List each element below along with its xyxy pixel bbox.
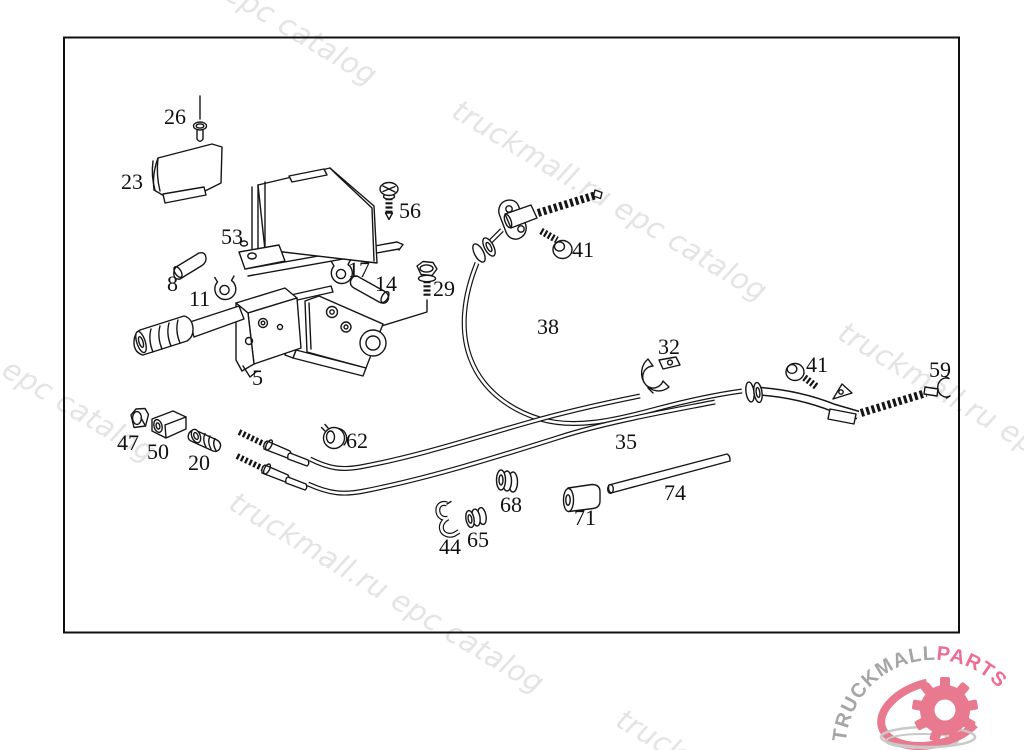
part-32-clamp [642,357,680,393]
part-20-sleeve [188,428,220,451]
watermark-text: truckmall.ru epc catalog [56,0,383,92]
callout-29: 29 [433,276,455,301]
watermark-text: truckmall.ru epc catalog [223,485,550,700]
part-5-hand-brake-lever [134,286,386,377]
callout-59: 59 [929,357,951,382]
callout-74: 74 [664,480,686,505]
callout-62: 62 [346,428,368,453]
brand-logo: TRUCKMALLPARTS [829,643,1011,750]
part-44-clip [438,502,459,536]
callout-26: 26 [164,104,186,129]
callout-41-rear: 41 [806,352,828,377]
callout-41-front: 41 [572,237,594,262]
callout-14: 14 [375,271,397,296]
watermark-text: truckmall.ru epc catalog [832,315,1024,530]
part-11-clip [215,276,236,299]
callout-5: 5 [252,365,263,390]
part-26-rivet [194,96,207,141]
callout-20: 20 [188,450,210,475]
callout-17: 17 [348,257,370,282]
callout-35: 35 [615,429,637,454]
callout-8: 8 [167,271,178,296]
part-53-bracket [239,168,403,276]
part-41-bolt-front [541,231,572,259]
callout-47: 47 [117,430,139,455]
part-62-grommet [322,425,347,449]
watermark-text: truckmall.ru epc catalog [446,93,773,308]
exploded-parts-diagram: truckmall.ru epc catalog truckmall.ru ep… [0,0,1024,750]
callout-50: 50 [147,439,169,464]
callout-11: 11 [189,286,210,311]
part-56-screw [380,183,398,220]
callout-56: 56 [399,198,421,223]
callout-65: 65 [467,527,489,552]
part-47-nut [131,409,149,428]
callout-68: 68 [500,492,522,517]
callout-53: 53 [221,224,243,249]
parts-catalog-page: truckmall.ru epc catalog truckmall.ru ep… [0,0,1024,750]
part-23-cover [152,144,222,203]
callout-23: 23 [121,169,143,194]
part-65-grommet [465,507,488,528]
part-50-sleeve [152,411,186,438]
callout-71: 71 [574,505,596,530]
part-38-front-cable [464,190,938,424]
callout-38: 38 [537,314,559,339]
callout-44: 44 [439,534,461,559]
watermark-layer: truckmall.ru epc catalog truckmall.ru ep… [0,0,1024,750]
callout-32: 32 [658,334,680,359]
part-68-grommet [497,470,518,492]
